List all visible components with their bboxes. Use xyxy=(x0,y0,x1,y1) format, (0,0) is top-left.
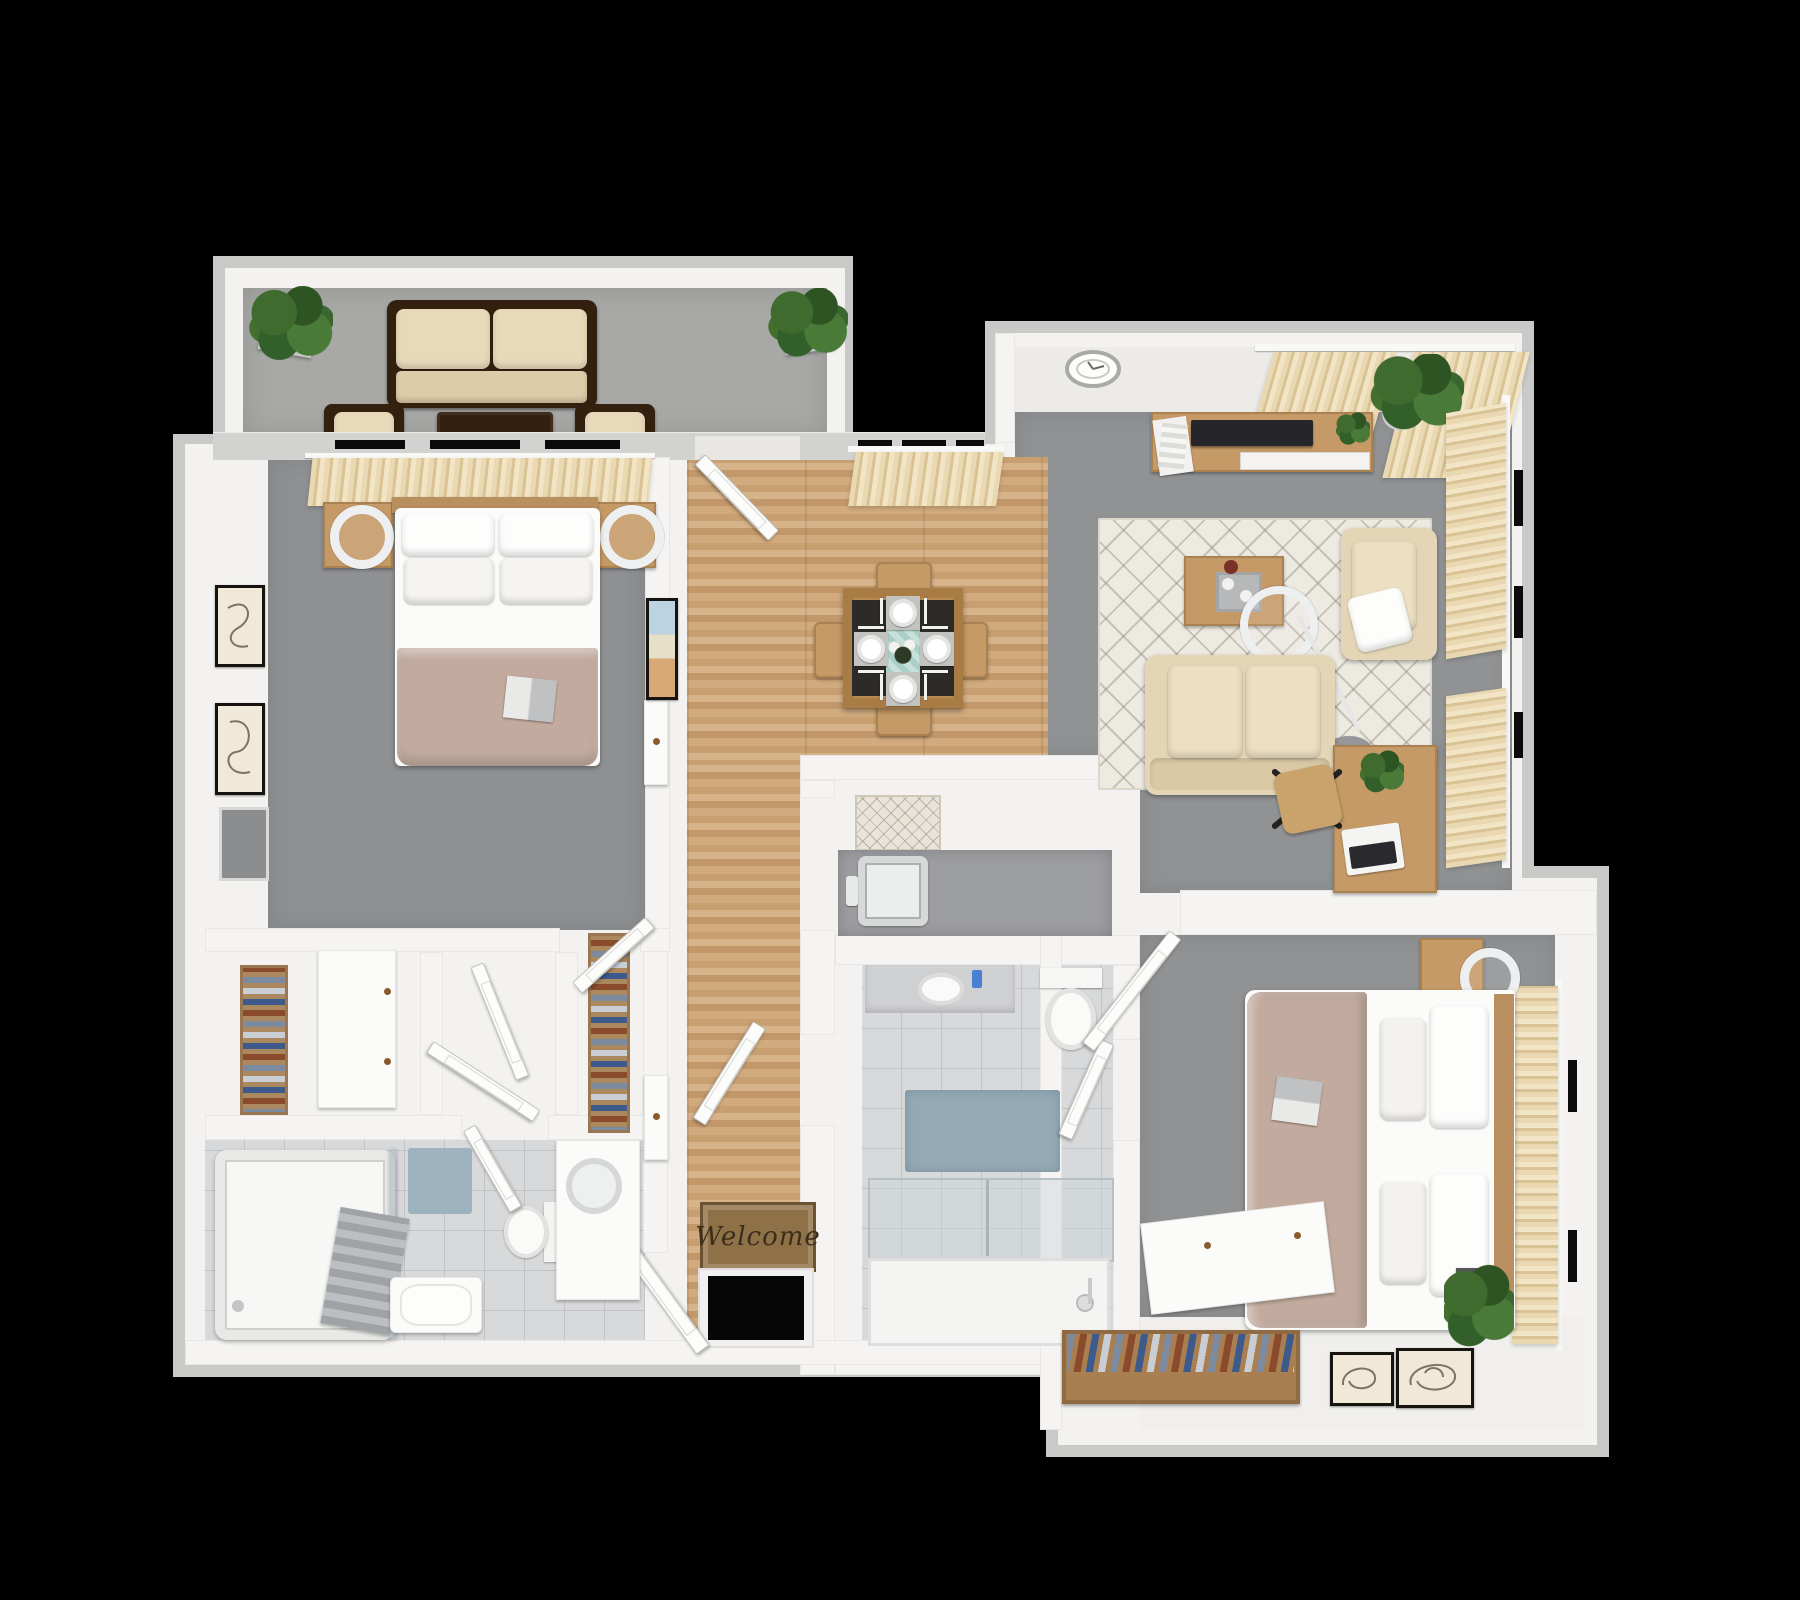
dinner-plate xyxy=(889,599,917,627)
welcome-mat: Welcome xyxy=(700,1202,816,1272)
bedroom1-lamp-left xyxy=(330,505,394,569)
cutlery xyxy=(880,598,883,624)
exterior-notch xyxy=(853,250,985,434)
office-chair-seat xyxy=(1272,762,1344,835)
sofa-cushion xyxy=(1246,666,1320,758)
bedroom1-tv-panel xyxy=(222,810,266,878)
living-top-window-rail xyxy=(1255,344,1515,351)
living-bed2-wall-b xyxy=(1180,890,1597,935)
bath1-bench-towel xyxy=(400,1284,472,1326)
cutlery xyxy=(924,598,927,624)
bath1-toilet-bowl xyxy=(504,1206,548,1258)
bedroom2-magazine xyxy=(1271,1076,1323,1126)
bedroom1-pillow xyxy=(404,558,494,604)
dinner-plate xyxy=(889,675,917,703)
bedroom2-pillow xyxy=(1380,1018,1426,1120)
bath1-bath-mat xyxy=(408,1148,472,1214)
dresser-knob xyxy=(384,988,391,995)
laundry-top-wall xyxy=(800,755,1140,780)
magazine-stack-top xyxy=(1158,423,1188,469)
bathroom1-top-wall xyxy=(205,1115,462,1140)
console-plant xyxy=(1336,412,1370,446)
loveseat-seat xyxy=(396,371,587,403)
patio-plant-left xyxy=(249,286,333,362)
bedroom2-pillow xyxy=(1380,1182,1426,1284)
closet-panel-knob xyxy=(1294,1232,1301,1239)
dresser-knob xyxy=(384,1058,391,1065)
dinner-plate xyxy=(923,635,951,663)
decor-bowl xyxy=(1224,560,1238,574)
bedroom1-dresser xyxy=(318,950,396,1108)
bedroom1-coverlet xyxy=(397,648,598,766)
living-window-glass xyxy=(1514,586,1523,638)
bedroom1-window-glass xyxy=(545,440,620,449)
cutlery xyxy=(858,626,884,629)
bedroom2-pillow xyxy=(1430,1006,1488,1128)
utility-sink-faucet xyxy=(846,876,858,906)
dining-chair-west xyxy=(814,622,846,678)
dinner-plate xyxy=(857,635,885,663)
bath1-vanity-sink xyxy=(566,1158,622,1214)
patio-door-threshold xyxy=(695,436,800,460)
tv-screen xyxy=(1191,420,1313,446)
patio-plant-right xyxy=(768,288,848,358)
bath2-sink xyxy=(918,973,964,1005)
bedroom1-window-glass xyxy=(335,440,405,449)
bedroom1-lamp-right xyxy=(600,505,664,569)
bath2-hand-shower-bar xyxy=(1088,1278,1092,1304)
living-window-glass xyxy=(1514,470,1523,526)
closet-panel-knob xyxy=(1204,1242,1211,1249)
welcome-mat-text: Welcome xyxy=(695,1222,821,1252)
bedroom1-wall-art xyxy=(215,585,265,667)
living-right-curtains xyxy=(1446,688,1506,868)
tv-console-drawers xyxy=(1240,452,1370,470)
ceiling-light-clock xyxy=(1064,340,1122,398)
bedroom1-wall-art xyxy=(215,703,265,795)
bedroom1-book xyxy=(503,676,557,723)
living-right-curtains xyxy=(1446,403,1506,660)
dining-centerpiece xyxy=(886,636,920,668)
bath1-tub-faucet xyxy=(232,1300,244,1312)
cutlery xyxy=(922,626,948,629)
living-west-wall xyxy=(995,333,1015,443)
hall-runner-rug xyxy=(855,795,941,851)
tray-cup xyxy=(1222,578,1234,590)
bath2-soap-bottle xyxy=(972,970,982,988)
cutlery xyxy=(880,674,883,700)
bedroom1-pillow xyxy=(500,558,592,604)
floor-plan: Welcome xyxy=(0,0,1800,1600)
loveseat-cushion-left xyxy=(396,309,490,369)
bedroom2-plant xyxy=(1444,1262,1514,1352)
entry-door-opening xyxy=(708,1276,804,1340)
bath2-bath-mat xyxy=(905,1090,1060,1172)
closet-door-knob xyxy=(653,1113,660,1120)
cutlery xyxy=(924,674,927,700)
cutlery xyxy=(858,670,884,673)
bath2-shower-divider xyxy=(986,1180,989,1256)
bath2-toilet-tank xyxy=(1040,968,1102,988)
utility-sink xyxy=(858,856,928,926)
dining-curtains xyxy=(848,452,1004,506)
laundry-bath2-divider xyxy=(835,935,1140,965)
closet-door-knob xyxy=(653,738,660,745)
hall-laundry-wall-a xyxy=(800,780,835,798)
bedroom1-window-glass xyxy=(430,440,520,449)
bedroom2-window-glass xyxy=(1568,1230,1577,1282)
hallway-wall-art xyxy=(646,598,678,700)
dining-chair-south xyxy=(876,704,932,736)
bedroom1-shoe-shelf xyxy=(240,965,288,1115)
living-window-glass xyxy=(1514,712,1523,758)
loveseat-cushion-right xyxy=(493,309,587,369)
hall-laundry-wall-b xyxy=(800,930,835,1035)
bedroom2-window-glass xyxy=(1568,1060,1577,1112)
sofa-cushion xyxy=(1168,666,1242,758)
bedroom2-hanging-clothes xyxy=(1068,1334,1294,1372)
hallway-floor xyxy=(687,760,800,1207)
bedroom1-pillow xyxy=(402,514,494,556)
bath2-shower-glass xyxy=(868,1178,1114,1262)
corridor-wall-b xyxy=(555,952,578,1115)
bedroom1-bottom-wall xyxy=(205,928,560,952)
bedroom2-floor-art xyxy=(1396,1348,1474,1408)
bedroom2-curtains xyxy=(1512,986,1558,1344)
corridor-wall-a xyxy=(420,952,443,1115)
bedroom1-pillow xyxy=(499,514,593,556)
desk-plant xyxy=(1360,750,1404,794)
bedroom2-floor-art xyxy=(1330,1352,1394,1406)
cutlery xyxy=(922,670,948,673)
